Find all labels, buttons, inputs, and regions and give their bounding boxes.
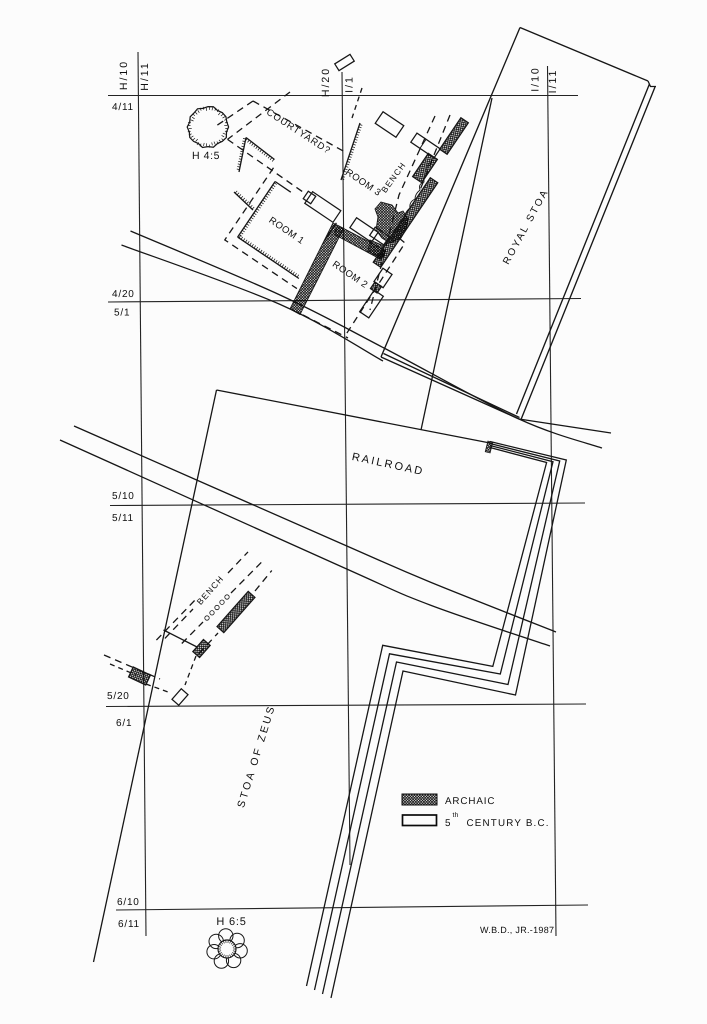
svg-text:5/20: 5/20 [107,691,130,702]
svg-text:H 6:5: H 6:5 [216,916,246,928]
svg-text:H/11: H/11 [139,61,151,90]
svg-text:CENTURY B.C.: CENTURY B.C. [467,818,550,829]
svg-text:5/10: 5/10 [112,491,135,502]
svg-text:I/11: I/11 [547,69,559,94]
svg-text:th: th [453,812,459,819]
svg-text:H/20: H/20 [320,67,332,97]
svg-text:4/11: 4/11 [112,102,134,113]
svg-text:I/10: I/10 [530,66,542,92]
svg-text:I/1: I/1 [344,75,356,93]
svg-text:6/11: 6/11 [118,919,140,930]
svg-text:4/20: 4/20 [112,289,135,300]
svg-text:5/11: 5/11 [112,513,134,524]
svg-text:5/1: 5/1 [114,308,130,319]
svg-text:6/10: 6/10 [117,897,140,908]
svg-text:H 4:5: H 4:5 [192,150,220,162]
svg-text:6/1: 6/1 [116,718,132,729]
svg-text:H/10: H/10 [118,60,130,90]
svg-text:W.B.D., JR.-1987: W.B.D., JR.-1987 [480,925,554,935]
svg-text:ARCHAIC: ARCHAIC [445,796,495,807]
svg-text:5: 5 [445,818,451,829]
